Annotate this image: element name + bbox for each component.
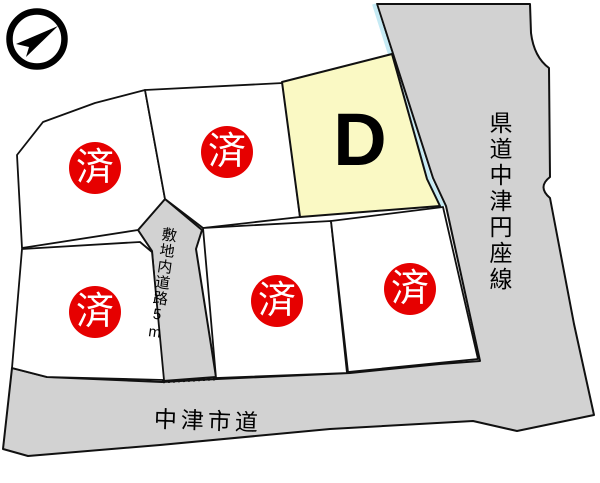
lot-4-sold-badge: 済 (69, 286, 121, 338)
lot-5-sold-badge: 済 (251, 275, 303, 327)
lot-map: 済 済 済 済 済 D 県道中津円座線 敷地内道路5m 中津市道 (0, 0, 600, 483)
prefectural-road-label: 県道中津円座線 (487, 111, 510, 293)
city-road-label: 中津市道 (153, 400, 262, 438)
lot-1-sold-badge: 済 (69, 142, 121, 194)
north-arrow-icon (10, 12, 65, 67)
lot-2-sold-badge: 済 (201, 126, 253, 178)
featured-lot-d-label: D (318, 98, 402, 182)
lot-6-sold-badge: 済 (384, 263, 436, 315)
